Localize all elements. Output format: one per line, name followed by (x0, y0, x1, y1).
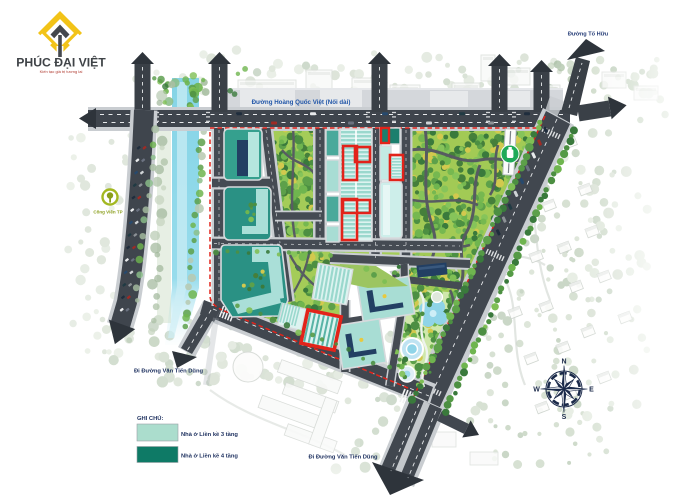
svg-text:Nhà ở Liền kề 4 tầng: Nhà ở Liền kề 4 tầng (181, 454, 238, 460)
svg-text:Công Viên TP: Công Viên TP (93, 210, 122, 215)
svg-text:S: S (562, 414, 567, 421)
svg-text:N: N (561, 359, 566, 366)
svg-text:Đường Hoàng Quốc Việt (Nối dài: Đường Hoàng Quốc Việt (Nối dài) (252, 99, 351, 106)
svg-text:Đi Đường Văn Tiến Dũng: Đi Đường Văn Tiến Dũng (308, 454, 378, 461)
svg-text:GHI CHÚ:: GHI CHÚ: (137, 415, 163, 422)
svg-text:E: E (589, 387, 594, 394)
svg-text:Kiến tạo giá trị tương lai: Kiến tạo giá trị tương lai (40, 69, 83, 74)
svg-text:Đường Tố Hữu: Đường Tố Hữu (568, 31, 609, 38)
svg-text:W: W (533, 387, 540, 394)
svg-text:Đi Đường Văn Tiến Dũng: Đi Đường Văn Tiến Dũng (134, 368, 204, 375)
svg-text:Nhà ở Liền kề 3 tầng: Nhà ở Liền kề 3 tầng (181, 432, 238, 438)
svg-text:PHÚC ĐẠI VIỆT: PHÚC ĐẠI VIỆT (16, 55, 106, 70)
